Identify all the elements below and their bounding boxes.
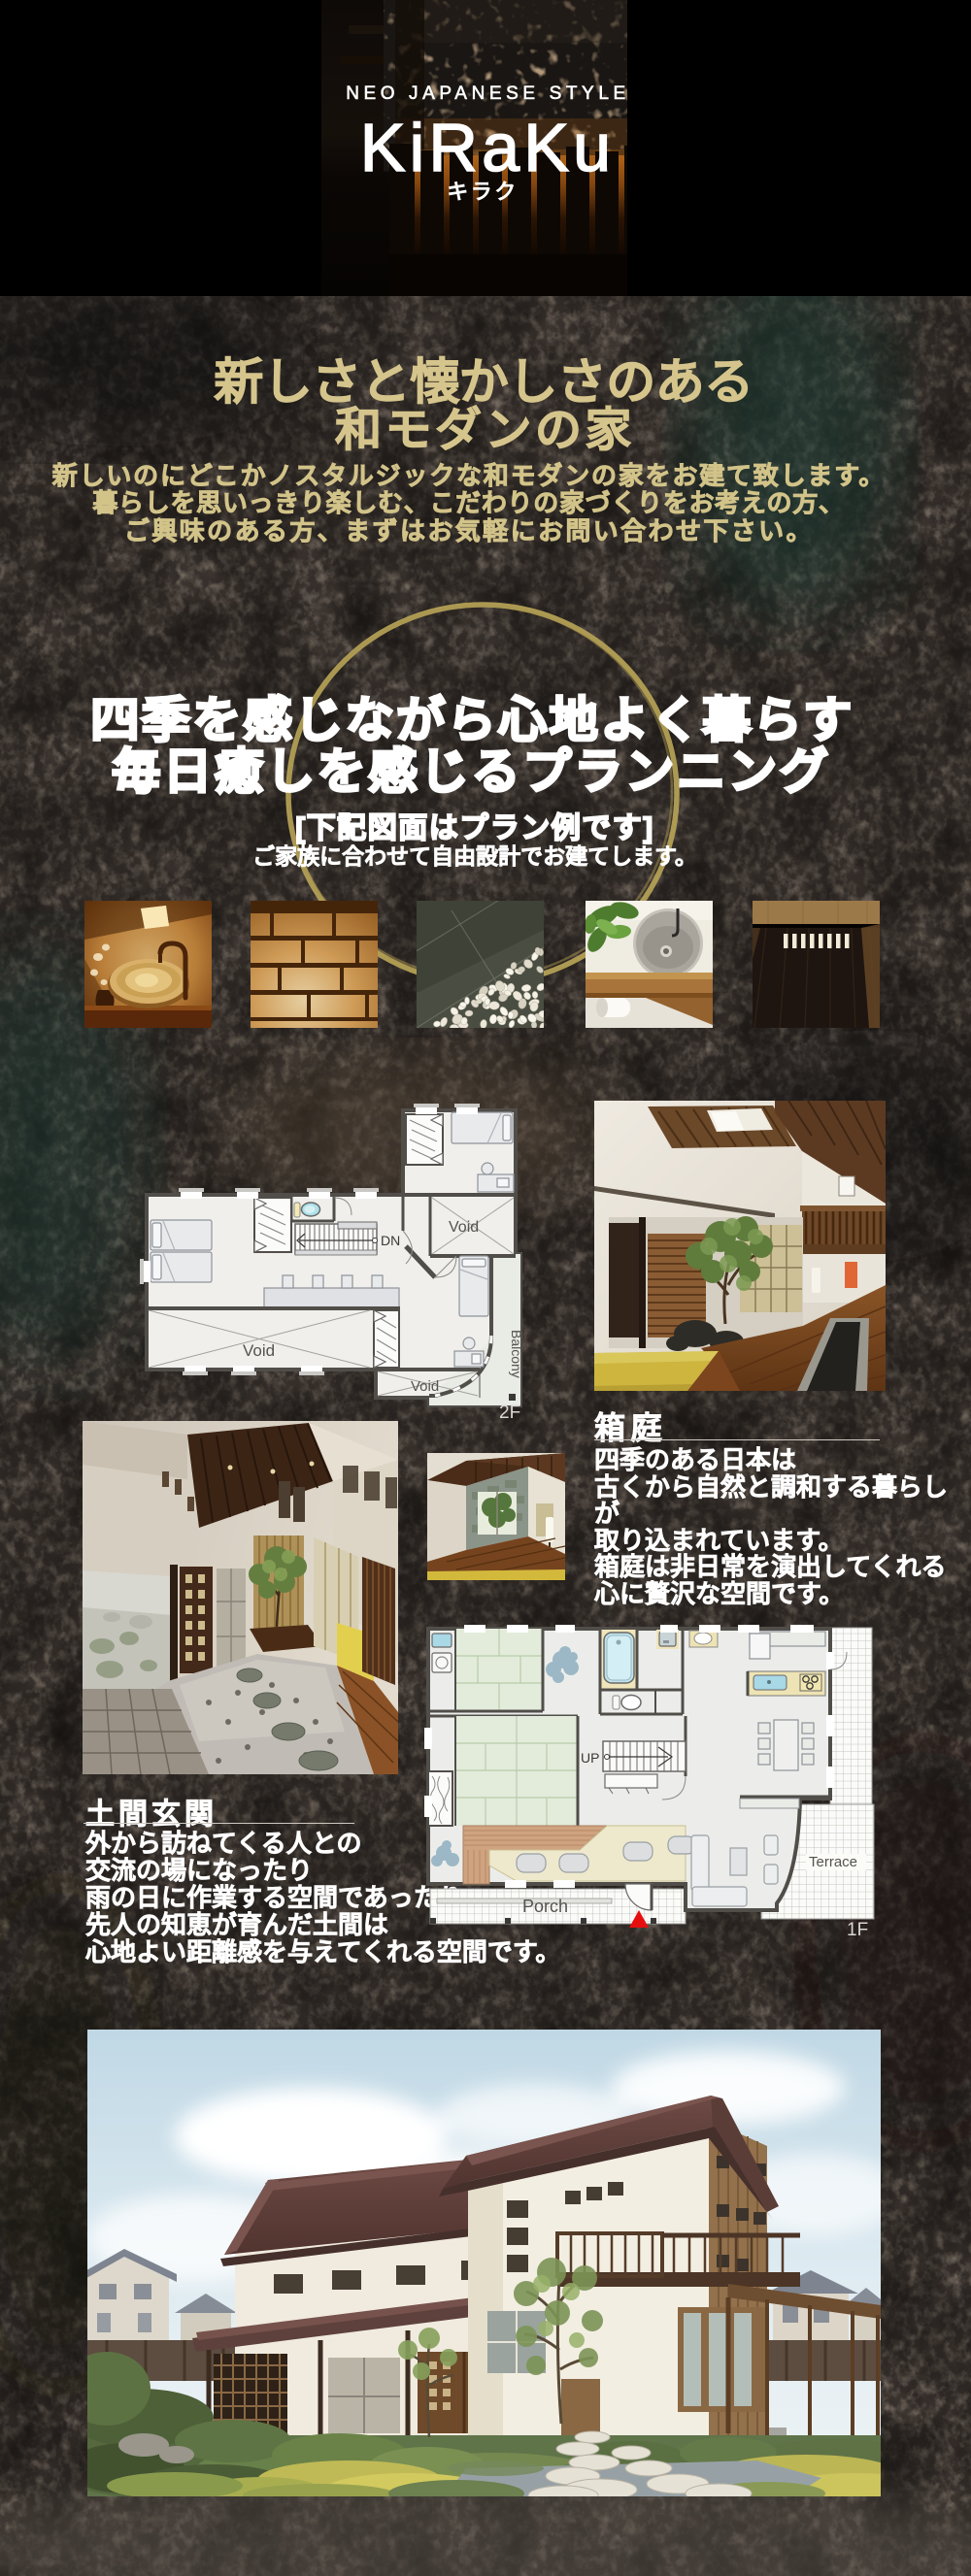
svg-text:Void: Void <box>243 1341 275 1360</box>
svg-text:2F: 2F <box>499 1403 520 1423</box>
svg-text:Balcony: Balcony <box>509 1330 524 1378</box>
svg-text:Porch: Porch <box>522 1897 568 1916</box>
svg-text:Void: Void <box>411 1378 439 1395</box>
svg-text:UP: UP <box>581 1750 599 1766</box>
svg-text:1F: 1F <box>847 1920 868 1940</box>
svg-text:Terrace: Terrace <box>809 1854 857 1870</box>
svg-text:Void: Void <box>449 1219 479 1236</box>
svg-text:DN: DN <box>381 1233 400 1248</box>
